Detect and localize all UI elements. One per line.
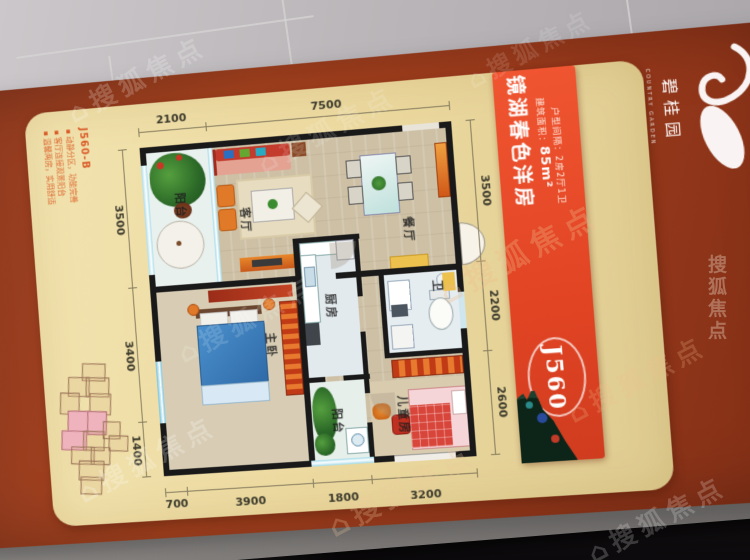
- swan-logo-icon: [675, 37, 750, 180]
- bath-washer-panel: [391, 304, 408, 317]
- dining-chair: [395, 155, 412, 174]
- dim-right-2200: 2200: [486, 288, 502, 322]
- room-label-dining: 餐厅: [400, 216, 418, 244]
- dim-tick: [138, 128, 140, 137]
- cushion: [239, 149, 250, 158]
- dim-bottom-3900: 3900: [232, 494, 269, 509]
- dining-chair: [345, 159, 362, 178]
- room-label-living: 客厅: [237, 207, 255, 234]
- dim-right-3500: 3500: [477, 173, 493, 207]
- cushion: [223, 150, 234, 159]
- room-label-balcony-top: 阳台: [172, 192, 190, 219]
- dim-bottom-700: 700: [160, 496, 195, 511]
- dim-tick: [165, 488, 167, 497]
- armchair: [216, 184, 236, 207]
- dim-left-3400: 3400: [122, 340, 137, 373]
- photo-stage: 碧桂园 COUNTRY GARDEN J560-B 动静分区，功能完善 客厅连接…: [0, 0, 750, 560]
- dim-left-3500: 3500: [112, 204, 127, 237]
- room-label-kids: 儿童房: [393, 395, 412, 436]
- kids-blanket: [409, 403, 453, 448]
- room-label-kitchen: 厨房: [322, 293, 340, 320]
- unit-info-block: J560-B 动静分区，功能完善 客厅连接观景阳台 温馨两房，实用舒适: [40, 127, 100, 301]
- sohu-watermark-vertical: 搜狐焦点: [708, 255, 730, 342]
- armchair: [218, 208, 238, 231]
- dining-chair: [397, 181, 414, 200]
- dim-tick: [313, 479, 315, 488]
- dim-tick: [491, 454, 500, 456]
- area-label: 建筑面积：: [533, 97, 547, 146]
- stove: [305, 323, 321, 346]
- dim-right-2600: 2600: [494, 385, 510, 418]
- dim-top-2100: 2100: [155, 111, 188, 127]
- dim-tick: [449, 101, 451, 110]
- dining-chair: [347, 186, 364, 205]
- bath-washer: [391, 324, 415, 350]
- room-label-balcony-bottom: 阳台: [329, 408, 347, 435]
- room-label-master: 主卧: [262, 332, 280, 359]
